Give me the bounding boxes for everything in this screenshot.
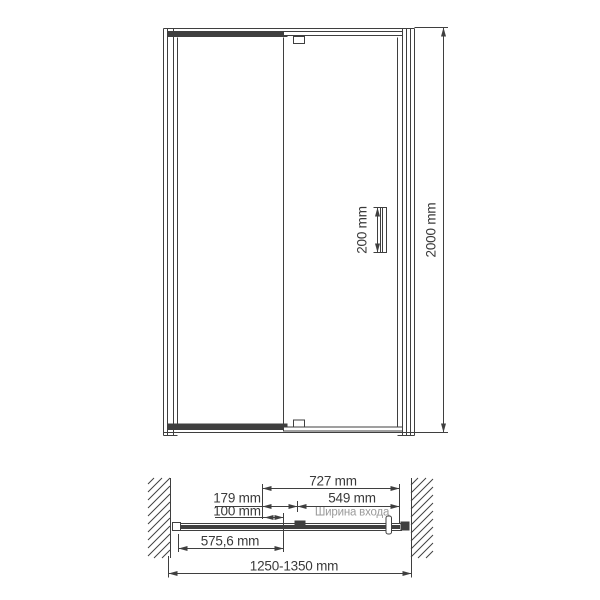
arrow-left xyxy=(263,486,272,491)
fixed-panel-bottom-rail xyxy=(168,424,288,431)
arrow-down xyxy=(375,244,380,253)
label-door-unit-width: 727 mm xyxy=(309,474,357,488)
door-bottom-bar xyxy=(284,427,403,431)
plan-pivot-block xyxy=(295,521,306,526)
arrow-up xyxy=(441,28,446,37)
arrow-left xyxy=(169,571,178,576)
arrow-right xyxy=(403,571,412,576)
right-wall-hatch xyxy=(411,478,433,558)
arrow-left xyxy=(265,515,274,520)
dim-handle-height xyxy=(374,208,382,253)
arrow-right xyxy=(275,546,284,551)
arrow-right xyxy=(289,504,298,509)
label-adjust: 100 mm xyxy=(213,504,261,518)
arrow-right xyxy=(275,515,284,520)
label-handle-height: 200 mm xyxy=(355,206,369,254)
top-pivot-bracket xyxy=(294,37,305,44)
plan-right-wall-block xyxy=(401,522,410,531)
arrow-down xyxy=(441,424,446,433)
door-top-bar xyxy=(284,32,403,36)
label-overall-width: 1250-1350 mm xyxy=(250,559,338,573)
door-handle-front xyxy=(381,208,387,253)
front-view xyxy=(164,29,415,436)
plan-glass-band xyxy=(181,525,400,529)
arrow-up xyxy=(375,208,380,217)
arrow-left xyxy=(263,504,272,509)
label-entrance-caption: Ширина входа xyxy=(315,507,389,519)
label-fixed-panel-width: 575,6 mm xyxy=(201,534,259,548)
arrow-right xyxy=(391,504,400,509)
arrow-left xyxy=(179,546,188,551)
left-wall-hatch xyxy=(148,478,170,558)
plan-left-wall-profile xyxy=(173,523,181,531)
arrow-right xyxy=(391,486,400,491)
technical-drawing-shower-door: 200 mm 2000 mm 727 mm 179 mm 549 mm 100 … xyxy=(0,0,600,600)
label-entrance-width: 549 mm xyxy=(328,491,376,505)
bottom-pivot-bracket xyxy=(294,420,305,427)
arrow-left xyxy=(298,504,307,509)
label-total-height: 2000 mm xyxy=(424,203,438,258)
drawing-linework xyxy=(0,0,600,600)
plan-view xyxy=(148,478,433,558)
fixed-panel-top-rail xyxy=(168,31,288,37)
